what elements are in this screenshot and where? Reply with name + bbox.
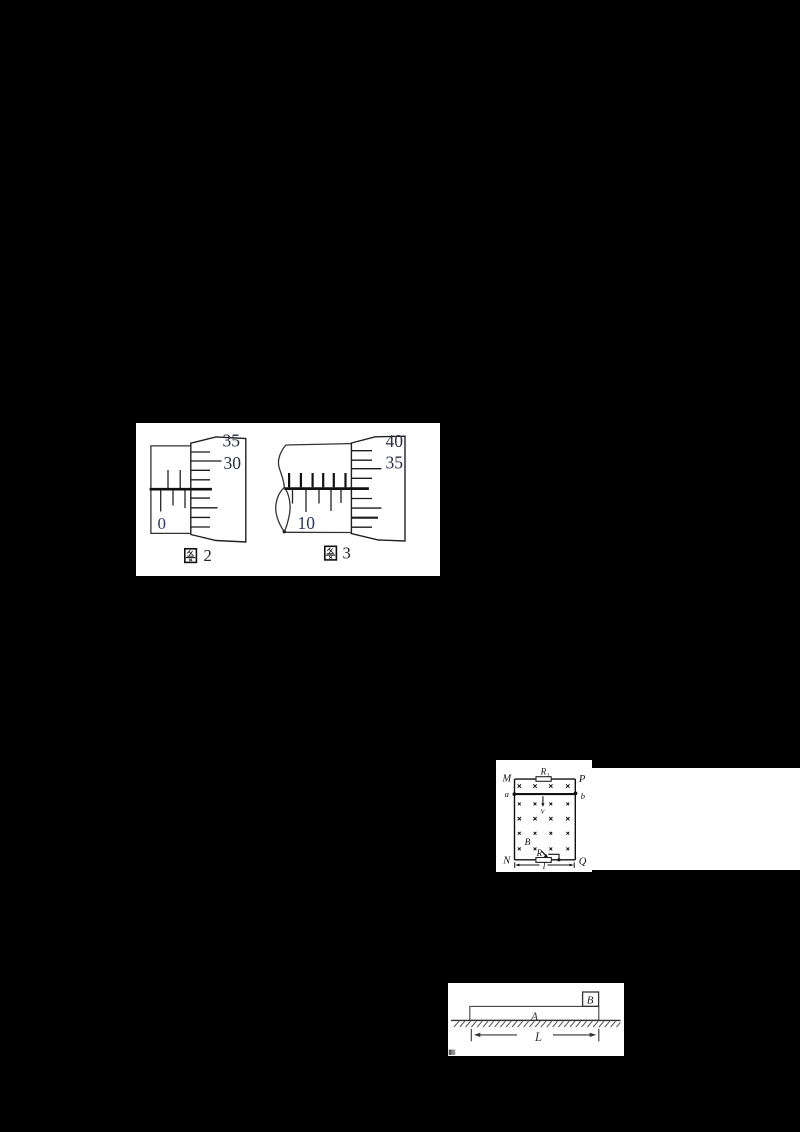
svg-text:M: M [502,773,513,784]
svg-text:35: 35 [223,431,241,451]
svg-text:B: B [525,837,531,847]
svg-text:3: 3 [343,544,351,563]
svg-text:a: a [505,789,509,799]
svg-text:Q: Q [579,856,587,867]
svg-text:N: N [502,855,511,866]
svg-text:35: 35 [386,453,404,473]
svg-text:10: 10 [298,513,316,533]
svg-text:40: 40 [386,431,404,451]
svg-text:2: 2 [204,546,212,565]
svg-text:1: 1 [547,772,550,778]
svg-text:b: b [581,791,585,801]
svg-text:B: B [587,995,594,1007]
svg-text:R: R [536,848,543,858]
svg-text:l: l [543,861,546,871]
svg-text:R: R [540,766,547,776]
svg-text:v: v [541,805,545,815]
svg-text:30: 30 [224,453,242,473]
svg-text:0: 0 [158,514,167,533]
svg-text:A: A [530,1011,539,1023]
svg-text:P: P [578,773,586,784]
svg-text:L: L [534,1030,542,1044]
